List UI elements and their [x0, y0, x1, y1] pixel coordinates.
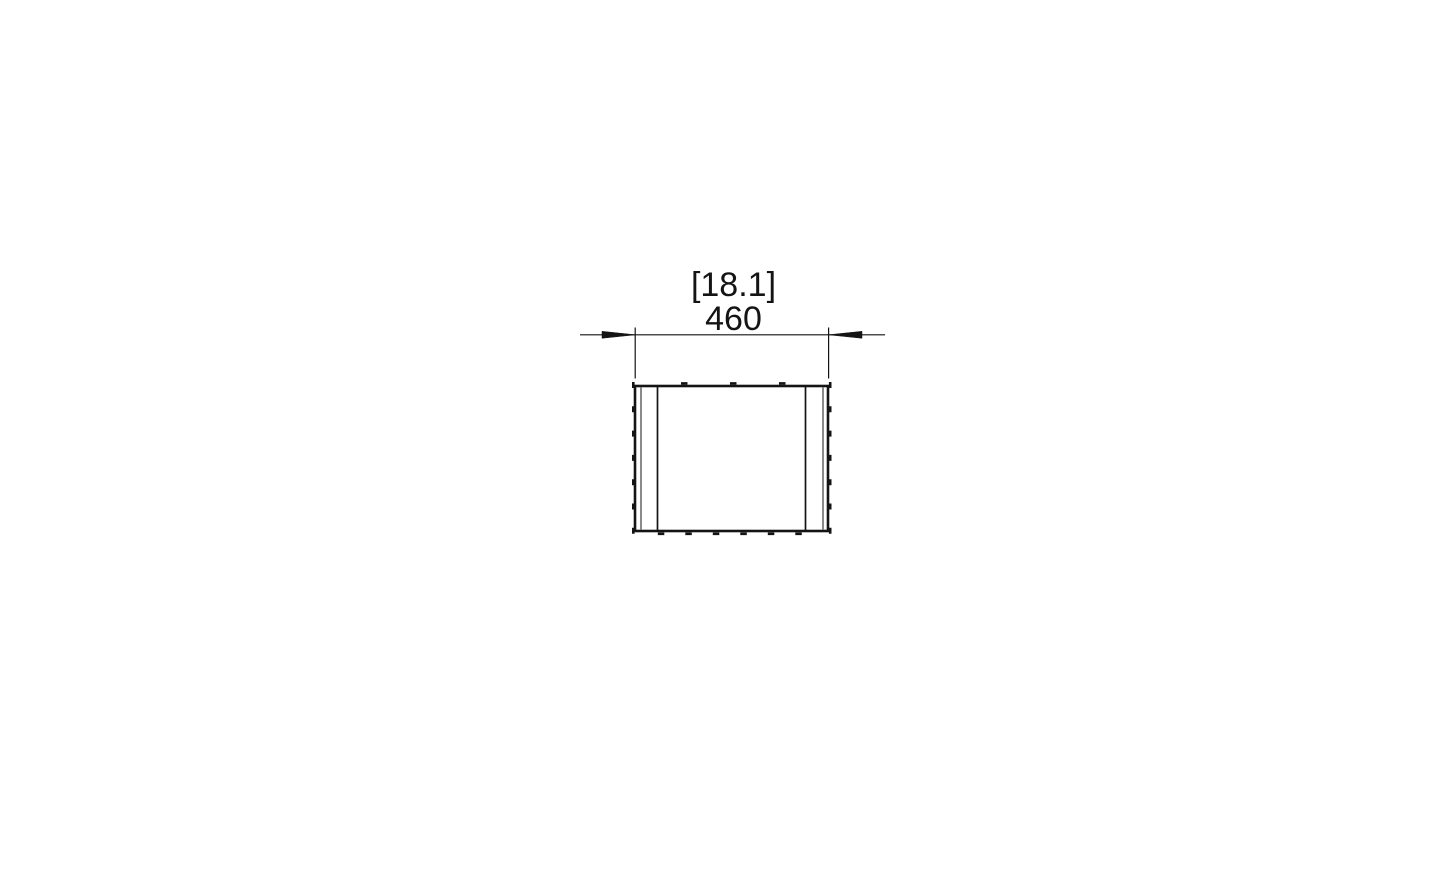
- component-outline: [635, 386, 828, 531]
- dimension-label-imperial: [18.1]: [691, 266, 776, 304]
- dimension-label-metric: 460: [705, 300, 762, 338]
- drawing-page: [18.1] 460: [0, 0, 1445, 893]
- component-top-view: [633, 382, 830, 534]
- technical-drawing-canvas: [18.1] 460: [0, 0, 1445, 893]
- dimension-arrow-left-icon: [602, 331, 636, 338]
- width-dimension-annotation: [18.1] 460: [580, 266, 885, 379]
- dimension-arrow-right-icon: [828, 331, 862, 338]
